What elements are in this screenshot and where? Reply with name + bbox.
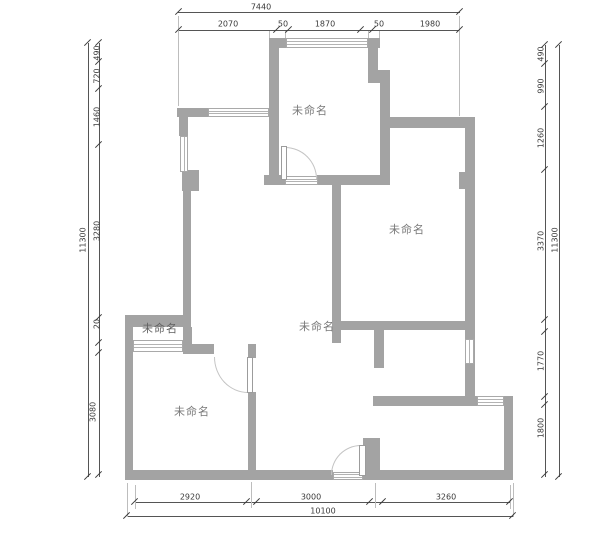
dim-top-seg-0: 2070 [218, 20, 238, 29]
dim-top-seg-1: 50 [278, 20, 288, 29]
dimension-line [545, 45, 546, 477]
dimension-line [135, 502, 510, 503]
extension-line [269, 31, 270, 38]
dim-right-seg-2: 1260 [537, 128, 546, 148]
dim-left-seg-5: 3080 [89, 402, 98, 422]
wall [177, 108, 208, 117]
dim-top-total: 7440 [251, 3, 271, 12]
dimension-tick [555, 473, 562, 480]
wall [183, 191, 191, 318]
wall [248, 344, 256, 358]
door-leaf [281, 146, 287, 180]
window [180, 136, 188, 172]
dimension-tick [84, 473, 91, 480]
wall [269, 38, 279, 180]
door-leaf [359, 445, 366, 476]
wall [374, 330, 384, 368]
wall [504, 396, 513, 480]
room-label-right: 未命名 [389, 221, 425, 237]
door-arc [331, 445, 361, 475]
dim-left-seg-3: 3280 [93, 221, 102, 241]
dim-right-seg-0: 490 [537, 46, 546, 61]
dim-top-seg-3: 50 [374, 20, 384, 29]
dim-right-seg-1: 990 [537, 78, 546, 93]
dim-left-total: 11300 [79, 227, 88, 252]
window [133, 340, 183, 352]
dimension-tick [509, 512, 516, 519]
window [208, 108, 269, 117]
dimension-line [178, 12, 460, 13]
extension-line [459, 16, 460, 116]
dim-right-seg-4: 1770 [537, 351, 546, 371]
dim-right-seg-3: 3370 [537, 231, 546, 251]
wall [125, 315, 133, 480]
extension-line [375, 483, 376, 508]
wall [248, 392, 256, 476]
dim-bottom-seg-2: 3260 [436, 493, 456, 502]
door-arc [214, 357, 248, 393]
dim-bottom-seg-1: 3000 [301, 493, 321, 502]
dim-right-seg-5: 1800 [537, 418, 546, 438]
extension-line [135, 485, 136, 509]
wall-pillar [182, 170, 199, 191]
room-label-top: 未命名 [292, 102, 328, 118]
dim-left-seg-4: 20 [93, 319, 102, 329]
dim-left-seg-1: 720 [93, 68, 102, 83]
wall [341, 321, 465, 330]
dimension-line [127, 516, 513, 517]
dimension-tick [456, 8, 463, 15]
dim-bottom-total: 10100 [310, 507, 335, 516]
window [477, 396, 504, 406]
dim-left-seg-2: 1460 [93, 107, 102, 127]
dim-top-seg-2: 1870 [315, 20, 335, 29]
floor-plan-canvas: 未命名 未命名 未命名 未命名 未命名 [0, 0, 600, 536]
wall [125, 470, 333, 480]
extension-line [379, 31, 380, 38]
room-label-bottom-left: 未命名 [174, 403, 210, 419]
window [465, 339, 474, 364]
dimension-line [559, 45, 560, 477]
wall [382, 117, 475, 128]
wall [183, 344, 214, 354]
door-leaf [247, 357, 253, 393]
dim-right-total: 11300 [551, 227, 560, 252]
wall-pillar [459, 172, 467, 189]
wall [317, 175, 390, 185]
door-arc [285, 147, 317, 179]
wall [373, 396, 477, 406]
wall [179, 117, 188, 136]
dim-top-seg-4: 1980 [420, 20, 440, 29]
wall [363, 470, 513, 480]
room-label-center: 未命名 [299, 318, 335, 334]
dim-left-seg-0: 490 [93, 45, 102, 60]
dimension-line [178, 30, 460, 31]
dim-bottom-seg-0: 2920 [180, 493, 200, 502]
extension-line [510, 485, 511, 509]
window [286, 38, 368, 48]
room-label-left-small: 未命名 [142, 320, 178, 336]
